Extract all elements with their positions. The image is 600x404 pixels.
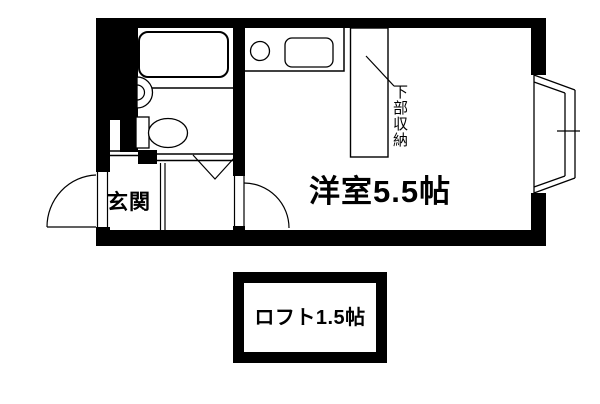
wall-corridor-pier (138, 150, 157, 164)
wall-left-mid (96, 120, 110, 172)
bay-window-icon (534, 75, 580, 193)
wall-right-bottom (531, 193, 546, 246)
entrance-door (47, 172, 108, 227)
kitchen-sink-icon (285, 38, 333, 67)
entrance-label: 玄関 (107, 192, 151, 213)
floor-plan-canvas: 洋室5.5帖 玄関 下部収納 ロフト1.5帖 (0, 0, 600, 404)
bathroom-fixtures (136, 32, 228, 148)
under-storage-label: 下部収納 (392, 84, 407, 148)
room-door-arc (244, 183, 289, 228)
loft-box: ロフト1.5帖 (233, 272, 387, 363)
bay-window-top-inner (534, 82, 565, 93)
bathtub-icon (139, 32, 228, 77)
wall-bottom (96, 230, 546, 246)
wall-bath-kitchen-divider (233, 18, 245, 176)
loft-label: ロフト1.5帖 (254, 308, 365, 328)
under-loft-storage (351, 28, 395, 157)
bay-window-top-outer (534, 75, 575, 90)
stove-burner-icon (251, 42, 270, 61)
storage-closet-outline (351, 28, 389, 157)
front-door-arc (47, 175, 96, 227)
wall-right-top (531, 18, 546, 75)
main-room-label: 洋室5.5帖 (309, 176, 451, 207)
toilet-bowl-icon (149, 119, 188, 148)
toilet-tank-icon (136, 117, 149, 148)
door-v-mark (193, 155, 235, 179)
kitchen-counter (245, 28, 344, 71)
wall-top (96, 18, 546, 28)
bay-window-bottom-inner (534, 176, 565, 187)
wall-left-top-block (96, 18, 138, 120)
wall-toilet-side (120, 120, 138, 152)
